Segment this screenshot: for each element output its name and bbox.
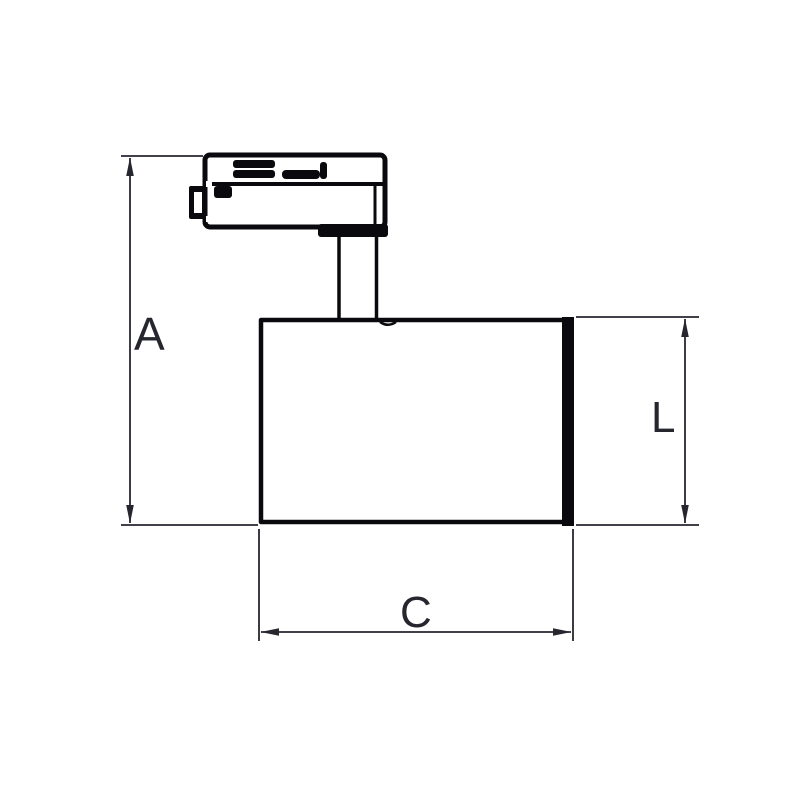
dimension-labels-group: A L C bbox=[134, 308, 675, 637]
adapter-latch-knob bbox=[214, 186, 232, 198]
adapter-contact-pin bbox=[320, 162, 327, 179]
latch-slot-cutout bbox=[208, 194, 212, 210]
adapter-corner-cutout bbox=[206, 181, 212, 187]
fixture-outline-group bbox=[205, 155, 571, 522]
fixture-filled-details-group bbox=[189, 160, 574, 526]
latch-tab-cutout bbox=[194, 192, 202, 213]
dimension-drawing-page: A L C bbox=[0, 0, 800, 800]
mounting-flange bbox=[318, 224, 388, 237]
spotlight-dimension-drawing: A L C bbox=[0, 0, 800, 800]
dimension-label-c: C bbox=[400, 588, 432, 637]
lamp-body-outline bbox=[261, 320, 571, 522]
adapter-contact-bar bbox=[282, 170, 320, 179]
adapter-contact-bar bbox=[233, 160, 275, 168]
body-top-notch bbox=[380, 322, 396, 325]
lamp-body-front-face bbox=[562, 317, 574, 526]
adapter-corner-cutout bbox=[206, 216, 212, 222]
dimension-label-l: L bbox=[651, 393, 675, 442]
dimension-label-a: A bbox=[134, 308, 165, 360]
adapter-contact-bar bbox=[233, 170, 275, 178]
